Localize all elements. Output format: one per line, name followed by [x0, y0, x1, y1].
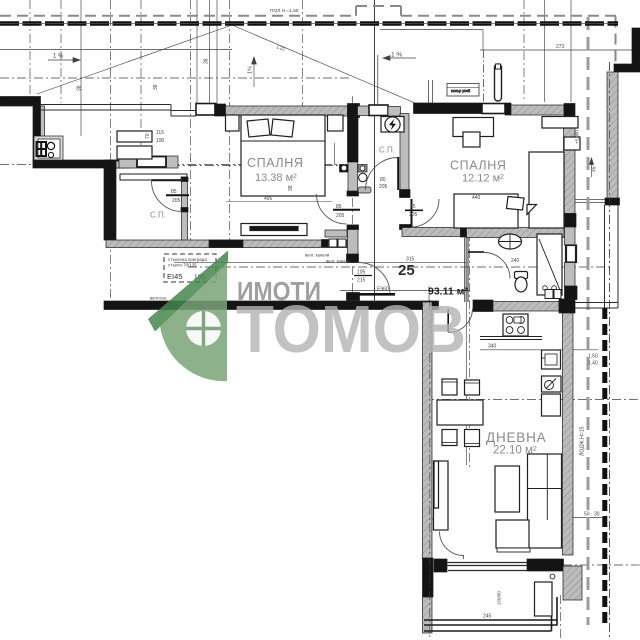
svg-text:СПАЛНЯ: СПАЛНЯ: [247, 156, 303, 170]
svg-text:1.50: 1.50: [588, 354, 598, 360]
svg-text:13.38 м²: 13.38 м²: [255, 172, 297, 184]
svg-text:315: 315: [406, 257, 415, 263]
svg-text:340: 340: [488, 344, 497, 350]
svg-text:25: 25: [398, 262, 415, 279]
svg-text:стъкло 70/135: стъкло 70/135: [168, 263, 197, 268]
svg-text:38: 38: [77, 85, 83, 91]
svg-text:205: 205: [336, 213, 345, 219]
svg-text:273: 273: [556, 44, 565, 50]
svg-text:ПОЛ.Н.=1,55: ПОЛ.Н.=1,55: [270, 8, 299, 14]
svg-text:240: 240: [511, 258, 520, 264]
svg-text:ЛОДЖ.Н=15: ЛОДЖ.Н=15: [580, 426, 586, 456]
svg-text:205: 205: [409, 212, 418, 218]
svg-text:215: 215: [357, 278, 366, 284]
svg-text:80: 80: [380, 177, 386, 183]
svg-text:ДНЕВНА: ДНЕВНА: [486, 430, 546, 445]
svg-text:115: 115: [156, 130, 164, 136]
svg-text:50: 50: [584, 512, 590, 518]
svg-text:мокър улей: мокър улей: [451, 89, 470, 93]
svg-text:ТОМОВ: ТОМОВ: [236, 292, 466, 367]
svg-text:вент.кан.: вент.кан.: [150, 296, 167, 301]
svg-text:С.П.: С.П.: [150, 211, 166, 220]
svg-text:1.40: 1.40: [588, 361, 598, 367]
svg-text:38: 38: [153, 84, 159, 90]
svg-text:12.12 м²: 12.12 м²: [462, 173, 504, 185]
svg-text:205: 205: [172, 198, 181, 204]
svg-text:ЕІ45: ЕІ45: [167, 272, 182, 281]
svg-text:85: 85: [410, 204, 416, 210]
svg-text:вент. канали: вент. канали: [305, 253, 330, 258]
svg-text:С.П.: С.П.: [379, 146, 395, 155]
svg-text:495: 495: [264, 196, 273, 202]
svg-text:150/90: 150/90: [497, 591, 502, 605]
svg-text:85: 85: [336, 204, 342, 210]
svg-text:245: 245: [483, 614, 492, 620]
svg-text:СПАЛНЯ: СПАЛНЯ: [450, 159, 506, 173]
svg-text:1 %: 1 %: [53, 54, 64, 60]
svg-text:вент. канали: вент. канали: [326, 259, 351, 264]
svg-text:190: 190: [156, 138, 165, 144]
svg-text:38: 38: [204, 58, 210, 64]
svg-text:38: 38: [288, 185, 294, 191]
svg-text:70: 70: [145, 133, 151, 139]
svg-text:45: 45: [592, 166, 598, 172]
svg-text:105: 105: [357, 270, 366, 276]
svg-text:22.10 м²: 22.10 м²: [493, 445, 537, 457]
svg-text:+5,090: +5,090: [575, 130, 580, 144]
svg-text:85: 85: [171, 189, 177, 195]
svg-text:440: 440: [472, 195, 481, 201]
svg-text:стъклена преграда: стъклена преграда: [168, 257, 207, 262]
svg-text:1 %: 1 %: [391, 52, 402, 59]
svg-text:1%: 1%: [248, 66, 254, 74]
svg-text:30: 30: [594, 512, 600, 518]
svg-text:205: 205: [379, 184, 388, 190]
